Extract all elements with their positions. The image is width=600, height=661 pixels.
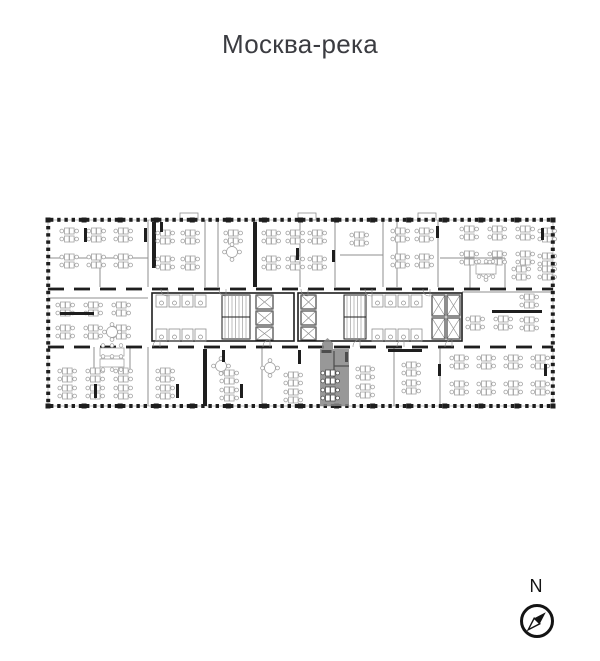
chair bbox=[99, 303, 103, 307]
mullion-tick bbox=[551, 327, 555, 330]
mullion-tick bbox=[309, 218, 312, 222]
chair bbox=[110, 368, 114, 372]
desk bbox=[119, 376, 124, 382]
chair bbox=[171, 257, 175, 261]
chair bbox=[87, 237, 91, 241]
mullion-tick bbox=[352, 218, 355, 222]
mullion-tick bbox=[46, 392, 50, 395]
chair bbox=[101, 355, 105, 359]
mullion-tick bbox=[46, 320, 50, 323]
desk bbox=[517, 266, 522, 272]
desk bbox=[509, 389, 514, 395]
chair bbox=[477, 382, 481, 386]
mullion-tick bbox=[46, 269, 50, 272]
desk bbox=[291, 238, 296, 244]
chair bbox=[156, 239, 160, 243]
chair bbox=[276, 366, 280, 370]
mullion-tick bbox=[216, 218, 219, 222]
desk bbox=[526, 226, 531, 232]
corridor-wall bbox=[100, 288, 116, 291]
mullion-tick bbox=[46, 298, 50, 301]
desk bbox=[476, 324, 481, 330]
chair bbox=[531, 356, 535, 360]
cabinet bbox=[388, 349, 422, 352]
desk bbox=[119, 254, 124, 260]
desk bbox=[92, 254, 97, 260]
mullion-tick bbox=[468, 218, 471, 222]
desk bbox=[455, 381, 460, 387]
chair bbox=[336, 379, 340, 383]
chair bbox=[503, 252, 507, 256]
chair bbox=[475, 252, 479, 256]
corridor-wall bbox=[438, 346, 454, 349]
chair bbox=[321, 379, 325, 383]
chair bbox=[475, 227, 479, 231]
chair bbox=[406, 263, 410, 267]
chair bbox=[535, 326, 539, 330]
chair bbox=[114, 377, 118, 381]
column bbox=[514, 218, 519, 223]
chair bbox=[477, 390, 481, 394]
desk bbox=[70, 228, 75, 234]
column bbox=[406, 218, 411, 223]
desk bbox=[536, 355, 541, 361]
chair bbox=[235, 396, 239, 400]
chair bbox=[491, 275, 495, 279]
chair bbox=[84, 334, 88, 338]
desk bbox=[526, 251, 531, 257]
chair bbox=[235, 388, 239, 392]
desk bbox=[482, 363, 487, 369]
desk bbox=[407, 388, 412, 394]
mullion-tick bbox=[551, 276, 555, 279]
chair bbox=[484, 275, 488, 279]
chair bbox=[415, 255, 419, 259]
chair bbox=[336, 388, 340, 392]
desk bbox=[470, 259, 475, 265]
mullion-tick bbox=[460, 404, 463, 408]
chair bbox=[415, 263, 419, 267]
chair bbox=[538, 267, 542, 271]
chair bbox=[450, 364, 454, 368]
desk bbox=[289, 397, 294, 403]
chair bbox=[323, 231, 327, 235]
desk bbox=[97, 262, 102, 268]
floor-plan bbox=[46, 213, 557, 409]
mullion-tick bbox=[180, 218, 183, 222]
mullion-tick bbox=[551, 320, 555, 323]
desk bbox=[313, 264, 318, 270]
desk bbox=[296, 264, 301, 270]
mullion-tick bbox=[439, 404, 442, 408]
desk bbox=[166, 385, 171, 391]
desk bbox=[296, 238, 301, 244]
desk bbox=[96, 368, 101, 374]
round-table bbox=[216, 361, 227, 372]
chair bbox=[477, 356, 481, 360]
desk bbox=[396, 236, 401, 242]
chair bbox=[450, 390, 454, 394]
corridor-wall bbox=[282, 288, 298, 291]
mullion-tick bbox=[72, 218, 75, 222]
desk bbox=[522, 266, 527, 272]
column bbox=[154, 218, 159, 223]
chair bbox=[129, 229, 133, 233]
desk bbox=[425, 228, 430, 234]
chair bbox=[535, 303, 539, 307]
desk bbox=[331, 395, 336, 401]
desk bbox=[122, 325, 127, 331]
mullion-tick bbox=[551, 233, 555, 236]
mullion-tick bbox=[46, 284, 50, 287]
chair bbox=[509, 325, 513, 329]
mullion-tick bbox=[252, 404, 255, 408]
unit-cabinet bbox=[322, 350, 332, 353]
desk bbox=[460, 355, 465, 361]
corridor-wall bbox=[412, 346, 428, 349]
desk bbox=[525, 294, 530, 300]
chair bbox=[268, 374, 272, 378]
chair bbox=[156, 369, 160, 373]
desk bbox=[225, 387, 230, 393]
chair bbox=[488, 252, 492, 256]
desk bbox=[63, 368, 68, 374]
mullion-tick bbox=[551, 341, 555, 344]
mullion-tick bbox=[46, 276, 50, 279]
desk bbox=[525, 302, 530, 308]
column bbox=[478, 218, 483, 223]
corridor-wall bbox=[490, 288, 506, 291]
chair bbox=[102, 237, 106, 241]
mullion-tick bbox=[46, 327, 50, 330]
column bbox=[118, 404, 123, 409]
mullion-tick bbox=[432, 404, 435, 408]
desk bbox=[97, 236, 102, 242]
desk bbox=[366, 392, 371, 398]
mullion-tick bbox=[551, 334, 555, 337]
chair bbox=[512, 275, 516, 279]
chair bbox=[129, 394, 133, 398]
compass: N bbox=[522, 576, 553, 637]
mullion-tick bbox=[295, 404, 298, 408]
chair bbox=[114, 369, 118, 373]
chair bbox=[519, 356, 523, 360]
desk bbox=[63, 385, 68, 391]
desk bbox=[161, 376, 166, 382]
mullion-tick bbox=[511, 404, 514, 408]
mullion-tick bbox=[46, 370, 50, 373]
mullion-tick bbox=[551, 248, 555, 251]
desk bbox=[92, 228, 97, 234]
chair bbox=[56, 334, 60, 338]
desk bbox=[70, 254, 75, 260]
mullion-tick bbox=[165, 404, 168, 408]
chair bbox=[406, 255, 410, 259]
chair bbox=[504, 364, 508, 368]
desk bbox=[225, 395, 230, 401]
chair bbox=[58, 394, 62, 398]
mullion-tick bbox=[424, 404, 427, 408]
desk bbox=[296, 230, 301, 236]
mullion-tick bbox=[208, 404, 211, 408]
chair bbox=[181, 231, 185, 235]
chair bbox=[512, 267, 516, 271]
chair bbox=[171, 394, 175, 398]
mullion-tick bbox=[252, 218, 255, 222]
desk bbox=[191, 256, 196, 262]
chair bbox=[308, 257, 312, 261]
column bbox=[298, 218, 303, 223]
chair bbox=[516, 260, 520, 264]
chair bbox=[181, 257, 185, 261]
mullion-tick bbox=[208, 218, 211, 222]
chair bbox=[546, 390, 550, 394]
chair bbox=[336, 371, 340, 375]
corridor-wall bbox=[282, 346, 298, 349]
chair bbox=[516, 252, 520, 256]
chair bbox=[417, 371, 421, 375]
chair bbox=[56, 303, 60, 307]
desk bbox=[272, 264, 277, 270]
desk bbox=[536, 381, 541, 387]
mullion-tick bbox=[360, 218, 363, 222]
desk bbox=[117, 310, 122, 316]
round-table bbox=[107, 327, 118, 338]
desk bbox=[122, 302, 127, 308]
mullion-tick bbox=[57, 218, 60, 222]
column bbox=[551, 218, 556, 223]
chair bbox=[460, 235, 464, 239]
mullion-tick bbox=[57, 404, 60, 408]
chair bbox=[519, 382, 523, 386]
column bbox=[46, 404, 51, 409]
desk bbox=[326, 370, 331, 376]
mullion-tick bbox=[288, 218, 291, 222]
corridor-wall bbox=[386, 288, 402, 291]
mullion-tick bbox=[46, 305, 50, 308]
corridor-wall bbox=[74, 288, 90, 291]
mullion-tick bbox=[201, 218, 204, 222]
chair bbox=[277, 239, 281, 243]
chair bbox=[450, 382, 454, 386]
mullion-tick bbox=[352, 404, 355, 408]
cabinet bbox=[176, 384, 179, 398]
mullion-tick bbox=[547, 218, 550, 222]
desk bbox=[407, 380, 412, 386]
chair bbox=[268, 359, 272, 363]
desk bbox=[471, 324, 476, 330]
column bbox=[370, 404, 375, 409]
corridor-wall bbox=[516, 288, 532, 291]
cabinet bbox=[436, 226, 439, 238]
mullion-tick bbox=[237, 404, 240, 408]
chair bbox=[299, 398, 303, 402]
desk bbox=[525, 325, 530, 331]
desk bbox=[493, 251, 498, 257]
mullion-tick bbox=[280, 404, 283, 408]
chair bbox=[430, 237, 434, 241]
desk bbox=[509, 355, 514, 361]
desk bbox=[499, 316, 504, 322]
desk bbox=[94, 333, 99, 339]
desk bbox=[94, 302, 99, 308]
mullion-tick bbox=[511, 218, 514, 222]
desk bbox=[360, 232, 365, 238]
column bbox=[118, 218, 123, 223]
mullion-tick bbox=[417, 218, 420, 222]
chair bbox=[301, 239, 305, 243]
mullion-tick bbox=[46, 226, 50, 229]
desk bbox=[161, 238, 166, 244]
mullion-tick bbox=[46, 399, 50, 402]
mullion-tick bbox=[504, 404, 507, 408]
desk bbox=[124, 236, 129, 242]
mullion-tick bbox=[424, 218, 427, 222]
desk bbox=[326, 387, 331, 393]
chair bbox=[301, 231, 305, 235]
chair bbox=[75, 255, 79, 259]
chair bbox=[284, 373, 288, 377]
chair bbox=[465, 364, 469, 368]
chair bbox=[492, 382, 496, 386]
desk bbox=[476, 316, 481, 322]
chair bbox=[553, 229, 557, 233]
chair bbox=[60, 263, 64, 267]
chair bbox=[223, 250, 227, 254]
chair bbox=[494, 317, 498, 321]
chair bbox=[277, 265, 281, 269]
chair bbox=[196, 265, 200, 269]
chair bbox=[73, 386, 77, 390]
desk bbox=[355, 240, 360, 246]
corridor-wall bbox=[334, 346, 350, 349]
chair bbox=[277, 231, 281, 235]
chair bbox=[477, 275, 481, 279]
corridor-wall bbox=[412, 288, 428, 291]
column bbox=[154, 404, 159, 409]
chair bbox=[127, 311, 131, 315]
mullion-tick bbox=[46, 240, 50, 243]
chair bbox=[494, 325, 498, 329]
mullion-tick bbox=[540, 404, 543, 408]
chair bbox=[531, 364, 535, 368]
mullion-tick bbox=[280, 218, 283, 222]
corridor-wall bbox=[126, 288, 142, 291]
desk bbox=[318, 230, 323, 236]
mullion-tick bbox=[551, 363, 555, 366]
chair bbox=[503, 227, 507, 231]
desk bbox=[117, 302, 122, 308]
chair bbox=[284, 390, 288, 394]
mullion-tick bbox=[551, 262, 555, 265]
desk bbox=[65, 228, 70, 234]
desk bbox=[225, 370, 230, 376]
desk bbox=[166, 256, 171, 262]
desk bbox=[465, 251, 470, 257]
chair bbox=[101, 377, 105, 381]
desk bbox=[420, 254, 425, 260]
chair bbox=[118, 330, 122, 334]
column bbox=[226, 404, 231, 409]
chair bbox=[466, 325, 470, 329]
desk bbox=[361, 374, 366, 380]
chair bbox=[114, 394, 118, 398]
chair bbox=[71, 326, 75, 330]
chair bbox=[415, 237, 419, 241]
mullion-tick bbox=[331, 218, 334, 222]
column bbox=[334, 218, 339, 223]
chair bbox=[299, 390, 303, 394]
chair bbox=[415, 229, 419, 233]
chair bbox=[509, 317, 513, 321]
mullion-tick bbox=[396, 404, 399, 408]
desk bbox=[498, 259, 503, 265]
chair bbox=[504, 356, 508, 360]
mullion-tick bbox=[396, 218, 399, 222]
cabinet bbox=[492, 310, 542, 313]
chair bbox=[402, 381, 406, 385]
mullion-tick bbox=[216, 404, 219, 408]
chair bbox=[460, 260, 464, 264]
mullion-tick bbox=[460, 218, 463, 222]
mullion-tick bbox=[46, 248, 50, 251]
mullion-tick bbox=[496, 218, 499, 222]
mullion-tick bbox=[551, 255, 555, 258]
chair bbox=[286, 239, 290, 243]
chair bbox=[430, 263, 434, 267]
desk bbox=[514, 355, 519, 361]
mullion-tick bbox=[489, 404, 492, 408]
chair bbox=[171, 265, 175, 269]
chair bbox=[538, 262, 542, 266]
chair bbox=[235, 379, 239, 383]
desk bbox=[536, 389, 541, 395]
desk bbox=[525, 317, 530, 323]
chair bbox=[477, 260, 481, 264]
chair bbox=[371, 367, 375, 371]
desk bbox=[396, 262, 401, 268]
mullion-tick bbox=[551, 284, 555, 287]
mullion-tick bbox=[551, 356, 555, 359]
desk bbox=[267, 238, 272, 244]
desk bbox=[401, 254, 406, 260]
mullion-tick bbox=[439, 218, 442, 222]
chair bbox=[308, 239, 312, 243]
desk bbox=[66, 325, 71, 331]
chair bbox=[112, 311, 116, 315]
chair bbox=[181, 265, 185, 269]
chair bbox=[60, 237, 64, 241]
desk bbox=[294, 397, 299, 403]
chair bbox=[110, 323, 114, 327]
mullion-tick bbox=[187, 404, 190, 408]
chair bbox=[181, 239, 185, 243]
chair bbox=[56, 311, 60, 315]
chair bbox=[75, 263, 79, 267]
desk bbox=[536, 363, 541, 369]
mullion-tick bbox=[288, 404, 291, 408]
desk bbox=[514, 363, 519, 369]
desk bbox=[487, 355, 492, 361]
desk bbox=[412, 388, 417, 394]
chair bbox=[391, 229, 395, 233]
chair bbox=[220, 396, 224, 400]
mullion-tick bbox=[309, 404, 312, 408]
chair bbox=[286, 265, 290, 269]
chair bbox=[417, 381, 421, 385]
cabinet bbox=[144, 228, 147, 242]
corridor-wall bbox=[308, 288, 324, 291]
